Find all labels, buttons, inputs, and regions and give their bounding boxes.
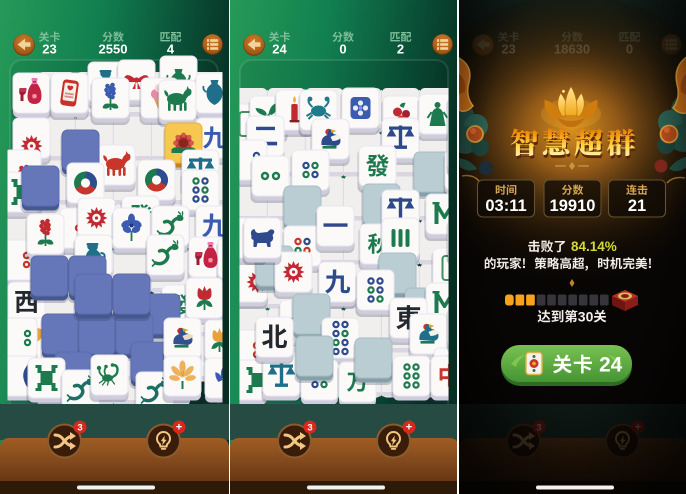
svg-text:+: +: [176, 422, 182, 434]
svg-text:30: 30: [577, 308, 593, 324]
svg-text:3: 3: [308, 423, 313, 434]
svg-text:+: +: [406, 422, 412, 434]
svg-text:2: 2: [397, 42, 404, 57]
svg-text:4: 4: [167, 42, 175, 57]
svg-text:0: 0: [340, 42, 347, 57]
svg-text:19910: 19910: [549, 197, 595, 215]
svg-text:23: 23: [42, 42, 56, 57]
svg-text:21: 21: [627, 197, 645, 215]
svg-text:84.14%: 84.14%: [571, 239, 617, 254]
svg-text:24: 24: [599, 354, 623, 377]
svg-text:3: 3: [77, 423, 82, 434]
svg-text:24: 24: [273, 42, 288, 57]
svg-text:03:11: 03:11: [485, 197, 526, 215]
svg-text:2550: 2550: [99, 42, 128, 57]
